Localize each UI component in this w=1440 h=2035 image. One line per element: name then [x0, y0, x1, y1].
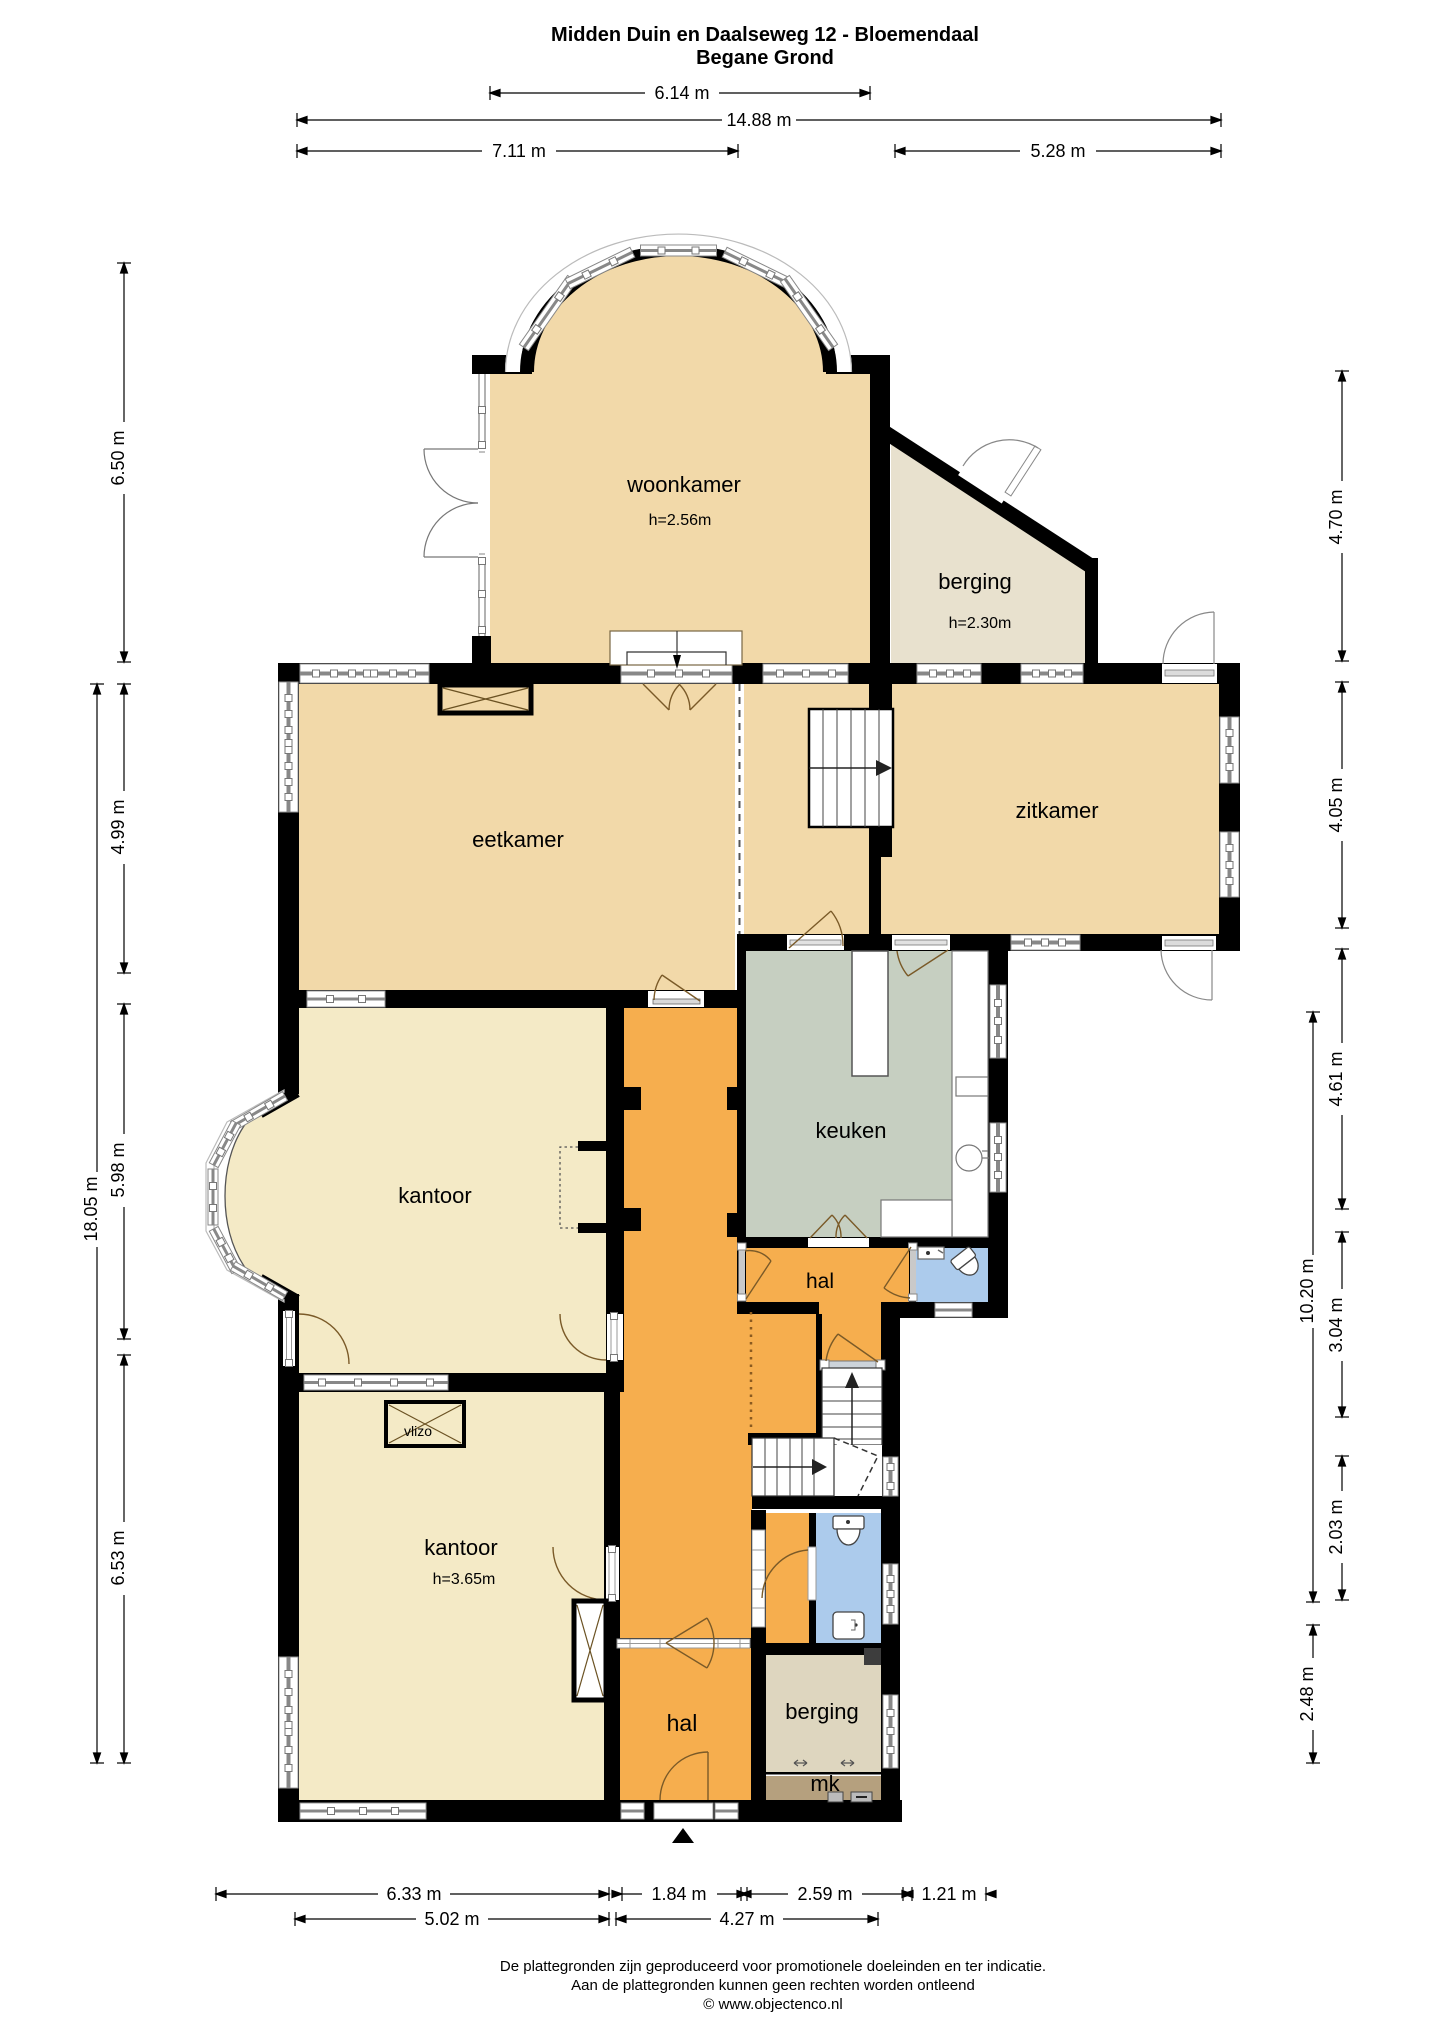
- svg-text:De plattegronden zijn geproduc: De plattegronden zijn geproduceerd voor …: [500, 1958, 1046, 1975]
- svg-text:14.88 m: 14.88 m: [726, 110, 791, 130]
- svg-text:woonkamer: woonkamer: [626, 472, 741, 497]
- svg-text:berging: berging: [938, 569, 1011, 594]
- svg-text:5.28 m: 5.28 m: [1030, 141, 1085, 161]
- svg-text:Aan de plattegronden kunnen ge: Aan de plattegronden kunnen geen rechten…: [571, 1977, 975, 1994]
- svg-text:hal: hal: [667, 1710, 698, 1736]
- svg-text:hal: hal: [806, 1270, 834, 1293]
- svg-text:7.11 m: 7.11 m: [492, 141, 546, 161]
- svg-text:zitkamer: zitkamer: [1015, 798, 1098, 823]
- svg-text:2.59 m: 2.59 m: [797, 1884, 852, 1904]
- svg-text:h=2.56m: h=2.56m: [649, 512, 712, 529]
- svg-text:kantoor: kantoor: [424, 1535, 497, 1560]
- svg-text:4.99 m: 4.99 m: [108, 799, 128, 854]
- svg-text:6.33 m: 6.33 m: [386, 1884, 441, 1904]
- svg-text:h=2.30m: h=2.30m: [949, 615, 1012, 632]
- svg-text:eetkamer: eetkamer: [472, 827, 564, 852]
- svg-text:keuken: keuken: [816, 1118, 887, 1143]
- svg-text:berging: berging: [785, 1699, 858, 1724]
- svg-text:3.04 m: 3.04 m: [1326, 1297, 1346, 1352]
- svg-text:4.61 m: 4.61 m: [1326, 1051, 1346, 1106]
- svg-text:6.53 m: 6.53 m: [108, 1530, 128, 1585]
- svg-text:6.14 m: 6.14 m: [654, 83, 709, 103]
- svg-text:18.05 m: 18.05 m: [81, 1176, 101, 1241]
- svg-text:6.50 m: 6.50 m: [108, 430, 128, 485]
- svg-text:vlizo: vlizo: [404, 1423, 432, 1439]
- svg-text:kantoor: kantoor: [398, 1183, 471, 1208]
- svg-text:4.05 m: 4.05 m: [1326, 777, 1346, 832]
- svg-text:Begane Grond: Begane Grond: [696, 47, 834, 69]
- svg-text:4.27 m: 4.27 m: [719, 1909, 774, 1929]
- svg-text:2.48 m: 2.48 m: [1297, 1666, 1317, 1721]
- svg-text:2.03 m: 2.03 m: [1326, 1499, 1346, 1554]
- svg-text:1.21 m: 1.21 m: [921, 1884, 976, 1904]
- svg-text:1.84 m: 1.84 m: [651, 1884, 706, 1904]
- svg-text:h=3.65m: h=3.65m: [433, 1571, 496, 1588]
- svg-text:10.20 m: 10.20 m: [1297, 1258, 1317, 1323]
- svg-text:mk: mk: [810, 1771, 840, 1796]
- svg-text:5.02 m: 5.02 m: [424, 1909, 479, 1929]
- svg-text:5.98 m: 5.98 m: [108, 1142, 128, 1197]
- svg-text:© www.objectenco.nl: © www.objectenco.nl: [703, 1996, 842, 2013]
- svg-text:Midden Duin en Daalseweg 12 -: Midden Duin en Daalseweg 12 - Bloemendaa…: [551, 24, 979, 46]
- svg-text:4.70 m: 4.70 m: [1326, 489, 1346, 544]
